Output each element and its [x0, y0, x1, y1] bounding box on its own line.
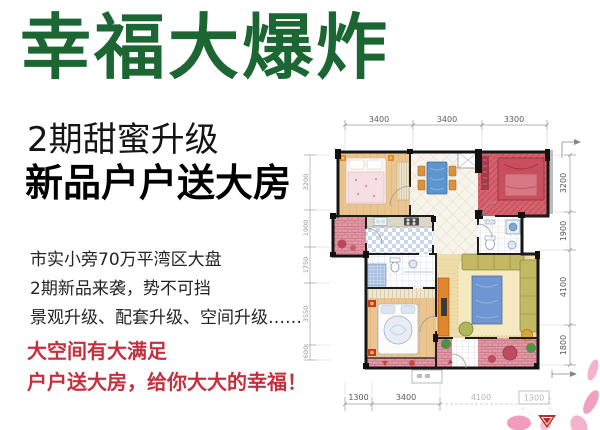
dim-right-3: 4100 — [559, 277, 568, 297]
balcony-plant — [338, 240, 347, 249]
dim-bottom-2: 3400 — [396, 393, 416, 402]
dining-chair — [418, 180, 425, 190]
pouf — [459, 322, 473, 336]
balcony-plant — [350, 245, 356, 251]
wardrobe-strip — [366, 288, 436, 298]
highlight-line-2: 户户送大房，给你大大的幸福！ — [27, 367, 307, 398]
body-line-1: 市实小旁70万平湾区大盘 — [30, 246, 302, 275]
poster-highlight: 大空间有大满足 户户送大房，给你大大的幸福！ — [27, 336, 307, 398]
dim-right-1: 3200 — [559, 173, 568, 193]
poster-subtitle-bold: 新品户户送大房 — [25, 152, 291, 207]
dining-chair — [418, 166, 425, 176]
bed-second — [378, 304, 418, 354]
dining-table — [427, 162, 447, 194]
dim-left-3: 1750 — [302, 257, 310, 274]
ad-poster: 幸福大爆炸 2期甜蜜升级 新品户户送大房 市实小旁70万平湾区大盘 2期新品来袭… — [0, 0, 600, 430]
dim-right-4: 1800 — [559, 335, 568, 355]
leader-arrow-bottom — [552, 370, 577, 378]
dim-top-1: 3400 — [369, 115, 389, 124]
poster-title: 幸福大爆炸 — [20, 4, 390, 93]
bed-master — [346, 158, 386, 204]
dim-bottom-3: 4100 — [471, 393, 491, 402]
dimension-top: 3400 3400 3300 — [343, 115, 549, 149]
poster-body-copy: 市实小旁70万平湾区大盘 2期新品来袭，势不可挡 景观升级、配套升级、空间升级…… — [30, 246, 302, 333]
dim-left-5: 600 — [302, 346, 310, 358]
dimension-bottom: 1300 3400 4100 1300 — [343, 382, 550, 411]
dining-chair — [449, 180, 456, 190]
kitchen-counter — [366, 216, 433, 227]
dim-left-1: 3200 — [302, 174, 310, 191]
floorplan-drawing: 3400 3400 3300 3200 1900 4100 1800 3200 … — [300, 112, 600, 430]
dim-left-2: 1900 — [302, 220, 310, 237]
dim-bottom-1: 1300 — [348, 393, 368, 402]
main-balcony-floor — [436, 338, 538, 368]
balcony-stamp — [409, 360, 415, 366]
dim-top-3: 3300 — [504, 115, 524, 124]
highlight-line-1: 大空间有大满足 — [27, 336, 307, 367]
tv-cabinet — [438, 278, 449, 336]
dim-left-4: 3550 — [302, 306, 310, 323]
body-line-2: 2期新品来袭，势不可挡 — [30, 275, 302, 304]
dim-bottom-4: 1300 — [524, 394, 544, 403]
wardrobe-master — [397, 162, 409, 200]
floorplan-panel: 3400 3400 3300 3200 1900 4100 1800 3200 … — [300, 112, 600, 430]
entry-label-box — [412, 370, 442, 383]
dining-chair — [449, 166, 456, 176]
hall-floor — [433, 216, 478, 254]
dimension-left: 3200 1900 1750 3550 600 — [302, 155, 330, 360]
left-balcony-floor — [333, 216, 366, 256]
dim-top-2: 3400 — [437, 115, 457, 124]
body-line-3: 景观升级、配套升级、空间升级…… — [30, 304, 302, 333]
dim-right-2: 1900 — [559, 221, 568, 241]
